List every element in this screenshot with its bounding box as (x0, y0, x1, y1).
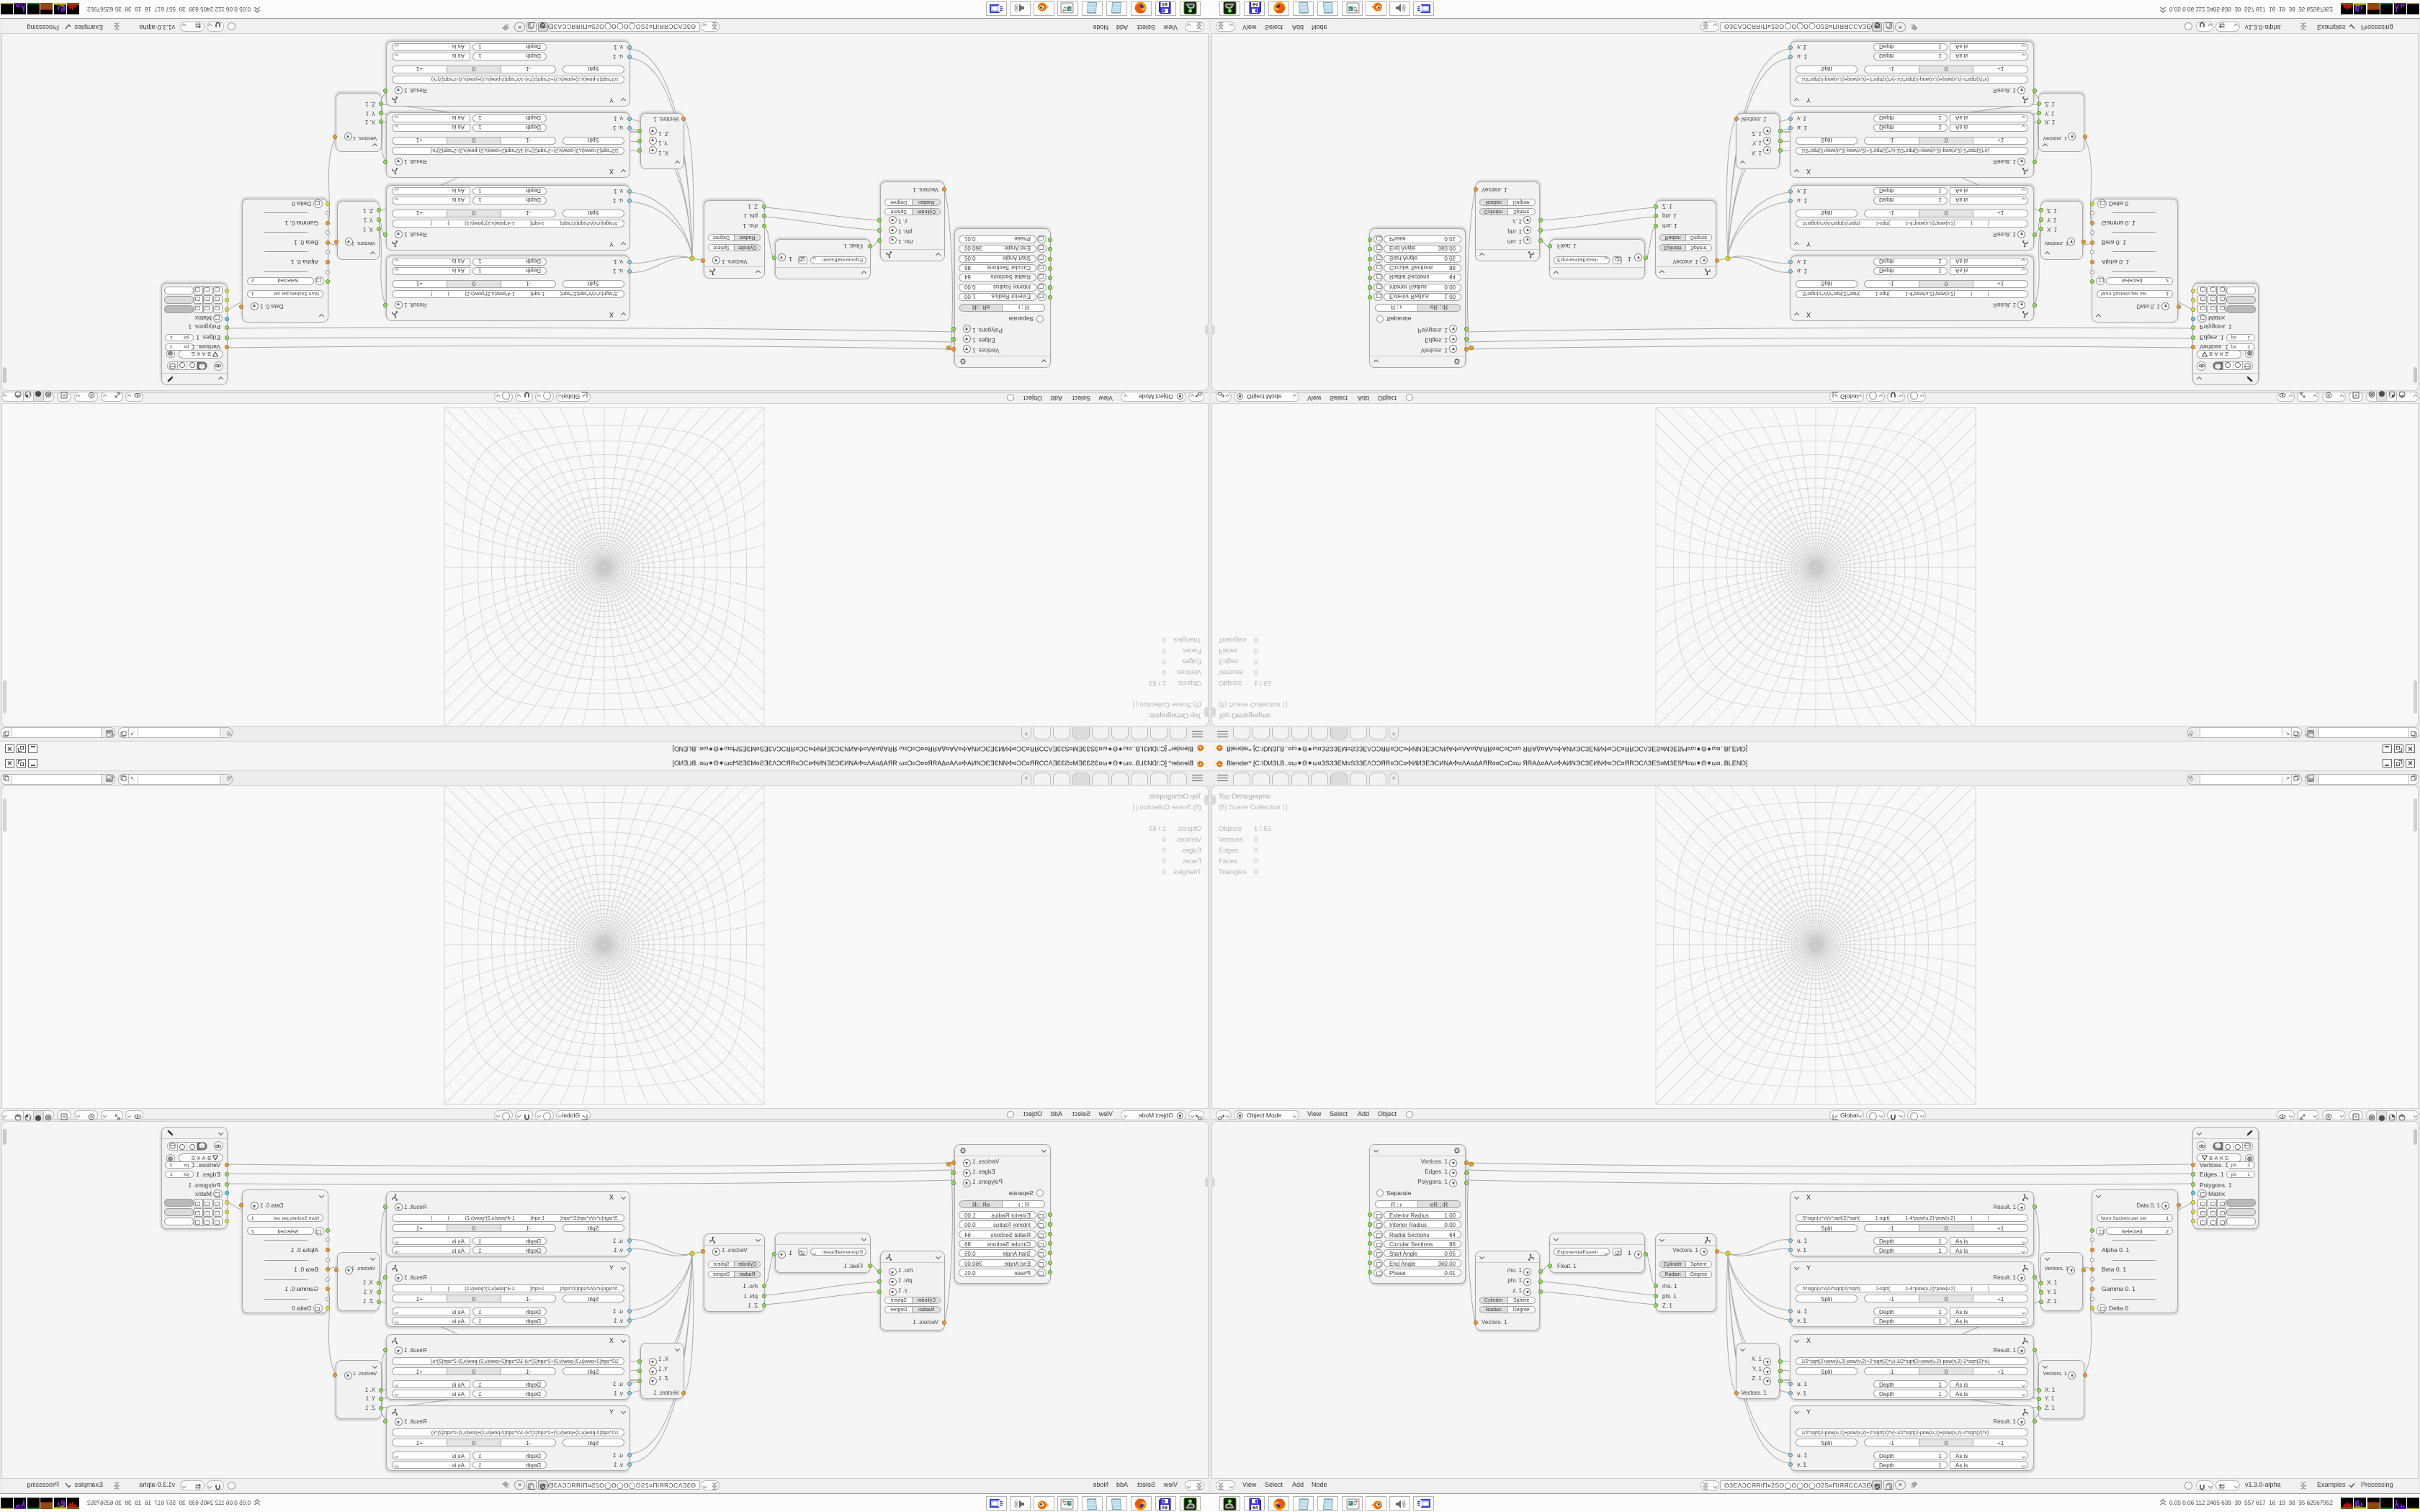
svg-text:64: 64 (1252, 2, 1258, 7)
svg-text:64: 64 (1162, 2, 1168, 7)
svg-text:64: 64 (1162, 1506, 1168, 1511)
svg-text:64: 64 (1252, 1506, 1258, 1511)
